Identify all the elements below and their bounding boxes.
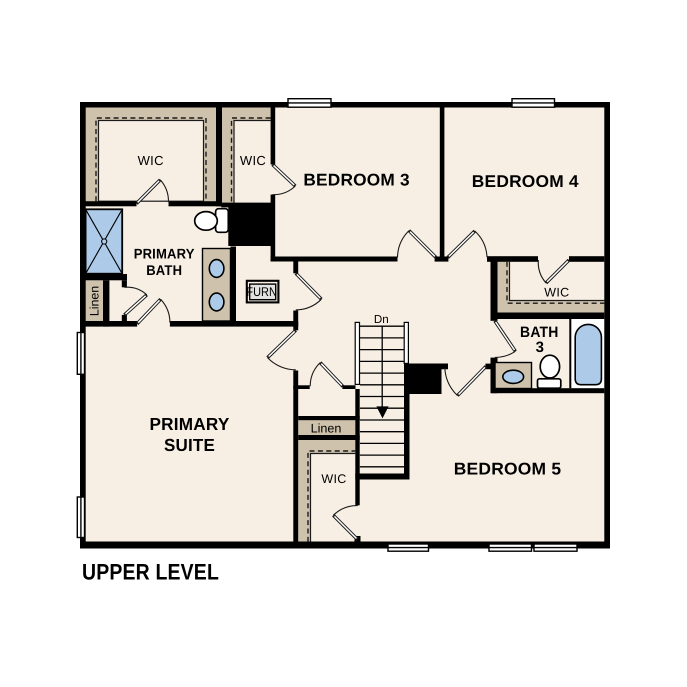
svg-text:3: 3 [536, 339, 545, 356]
svg-text:BEDROOM 3: BEDROOM 3 [303, 170, 410, 189]
svg-text:WIC: WIC [544, 285, 569, 299]
svg-text:WIC: WIC [240, 153, 266, 168]
svg-text:Linen: Linen [88, 286, 102, 316]
svg-text:BEDROOM 5: BEDROOM 5 [454, 460, 562, 479]
svg-text:BEDROOM 4: BEDROOM 4 [472, 172, 579, 191]
svg-text:UPPER LEVEL: UPPER LEVEL [82, 560, 219, 585]
svg-text:BATH: BATH [146, 262, 182, 278]
svg-text:SUITE: SUITE [164, 435, 215, 455]
svg-text:WIC: WIC [321, 472, 346, 486]
svg-text:Dn: Dn [374, 313, 389, 326]
svg-text:PRIMARY: PRIMARY [134, 246, 195, 262]
svg-text:FURN: FURN [246, 285, 277, 299]
svg-text:Linen: Linen [311, 421, 342, 435]
svg-text:WIC: WIC [138, 153, 164, 168]
svg-text:PRIMARY: PRIMARY [150, 414, 230, 434]
